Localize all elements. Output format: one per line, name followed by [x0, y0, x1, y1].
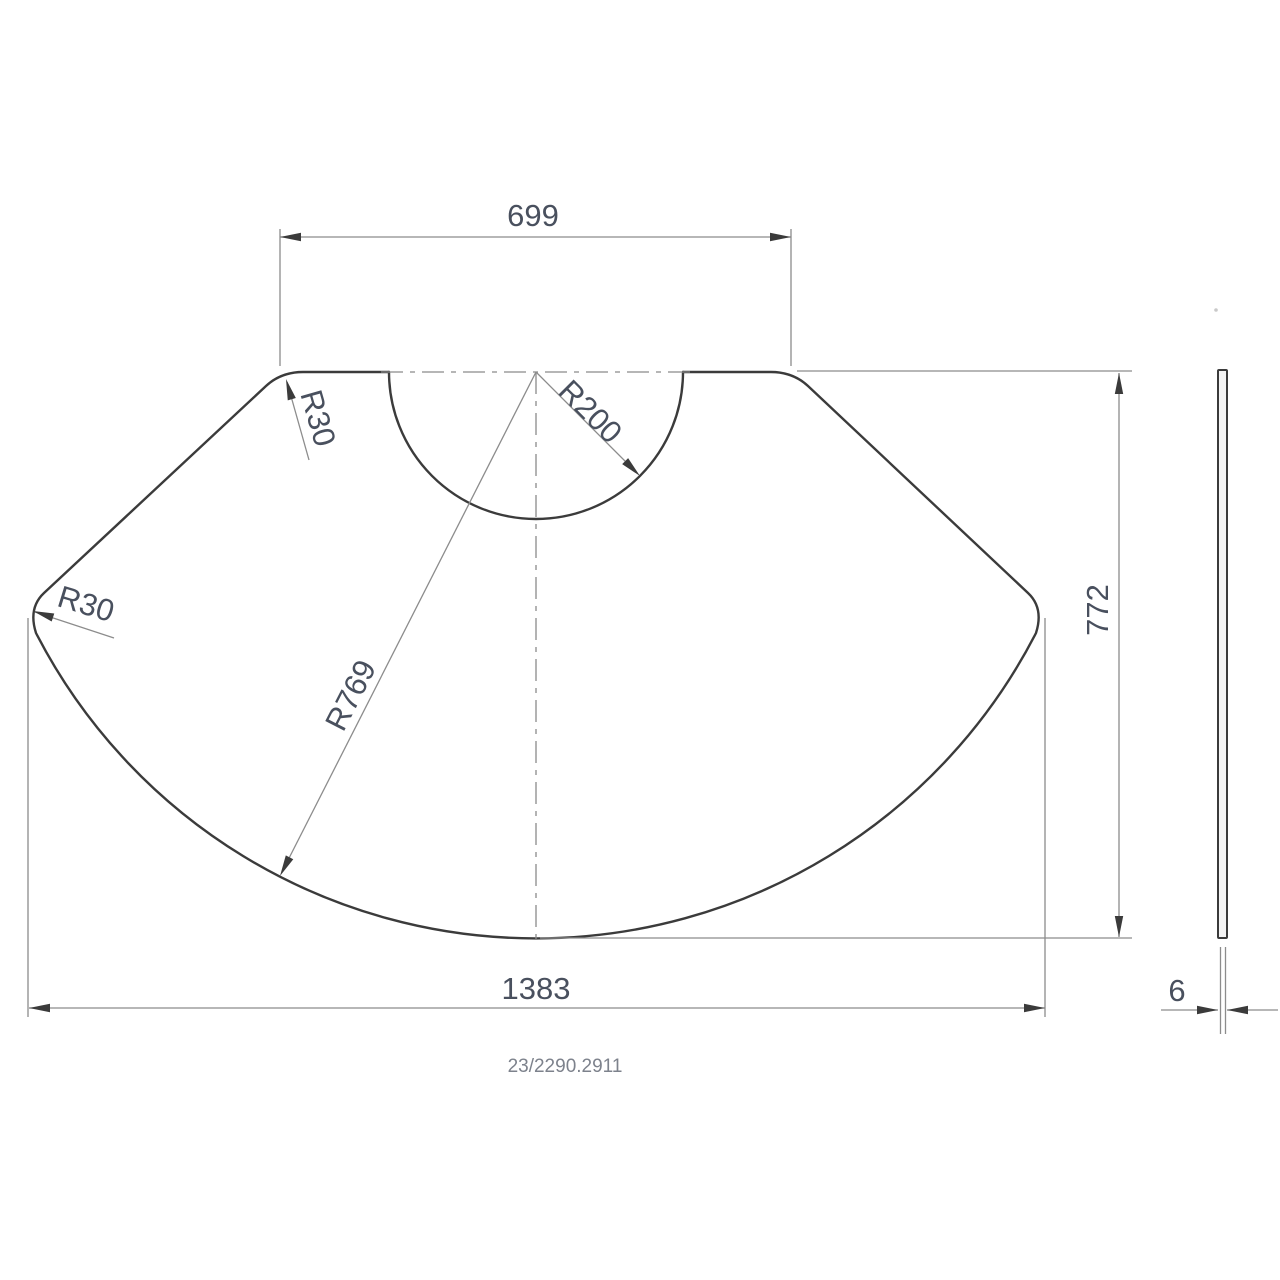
stray-dot — [1214, 308, 1218, 312]
arrowhead — [276, 855, 293, 878]
arrowhead-bottom — [1115, 916, 1123, 937]
leader-corner-radius-left: R30 — [32, 579, 119, 638]
leader-corner-radius-top-left: R30 — [282, 378, 343, 460]
overall-width-label: 1383 — [502, 971, 571, 1006]
arrowhead — [622, 458, 643, 479]
arrowhead-right — [1227, 1006, 1248, 1014]
arrowhead-top — [1115, 373, 1123, 394]
arrowhead-left — [280, 233, 301, 241]
corner-radius-top-left-label: R30 — [293, 386, 342, 450]
arrowhead-left — [29, 1004, 50, 1012]
part-number-label: 23/2290.2911 — [508, 1056, 623, 1077]
notch-radius-label: R200 — [552, 373, 629, 450]
arrowhead — [282, 378, 296, 401]
thickness-label: 6 — [1168, 973, 1185, 1008]
technical-drawing-canvas: 699 772 1383 R200 — [0, 0, 1280, 1280]
arrowhead-right — [1024, 1004, 1045, 1012]
arrowhead-left — [1197, 1006, 1218, 1014]
overall-height-label: 772 — [1080, 584, 1115, 636]
leader-notch-radius: R200 — [536, 372, 643, 479]
dimension-top-width: 699 — [280, 198, 791, 366]
outer-radius-label: R769 — [318, 654, 383, 736]
side-view-plate — [1218, 370, 1227, 938]
top-width-label: 699 — [507, 198, 559, 233]
arrowhead-right — [770, 233, 791, 241]
dimension-thickness: 6 — [1161, 947, 1278, 1034]
technical-drawing-page: 699 772 1383 R200 — [0, 0, 1280, 1280]
